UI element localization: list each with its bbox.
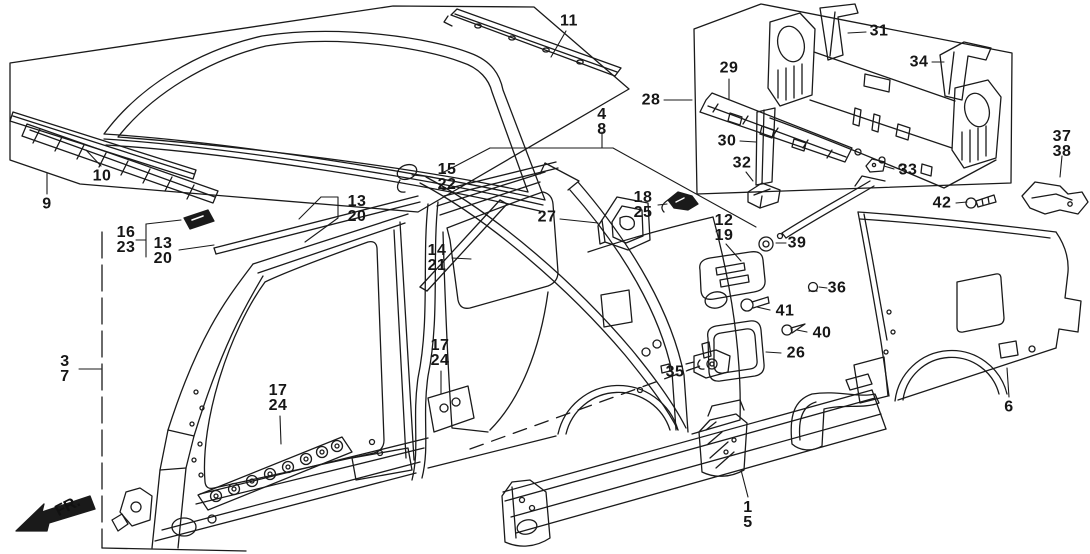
callout-33[interactable]: 33	[899, 163, 918, 178]
parts-diagram-page: 9 10 11 48 28 29 31 34 30 32 33 3738 42 …	[0, 0, 1090, 554]
diagram-line-art	[0, 0, 1090, 554]
sill-panel-1-5	[502, 374, 886, 546]
callout-16-23[interactable]: 1623	[117, 225, 136, 255]
roof-panel	[104, 31, 545, 211]
rear-channel-30	[756, 108, 775, 185]
callout-3-7[interactable]: 37	[60, 354, 69, 384]
callout-35[interactable]: 35	[666, 365, 685, 380]
leader-lines	[47, 31, 1062, 497]
callout-18-25[interactable]: 1825	[634, 190, 653, 220]
front-roof-rail	[10, 112, 218, 203]
callout-28[interactable]: 28	[642, 93, 661, 108]
callout-41[interactable]: 41	[776, 304, 795, 319]
rear-bracket-34	[940, 42, 991, 100]
callout-4-8[interactable]: 48	[597, 107, 606, 137]
callout-37-38[interactable]: 3738	[1053, 129, 1072, 159]
gutter-bracket-37-38	[1022, 182, 1088, 214]
callout-14-21[interactable]: 1421	[428, 243, 447, 273]
callout-40[interactable]: 40	[813, 326, 832, 341]
callout-17-24-right[interactable]: 1724	[431, 338, 450, 368]
fuel-adapter-12-19	[700, 252, 765, 300]
callout-42[interactable]: 42	[933, 196, 952, 211]
callout-32[interactable]: 32	[733, 156, 752, 171]
callout-36[interactable]: 36	[828, 281, 847, 296]
callout-13-20-left[interactable]: 1320	[154, 236, 173, 266]
fuel-lid-26	[698, 321, 764, 381]
callout-10[interactable]: 10	[93, 169, 112, 184]
callout-27[interactable]: 27	[538, 210, 557, 225]
callout-31[interactable]: 31	[870, 24, 889, 39]
grommet-39	[759, 237, 773, 251]
screw-40	[782, 324, 805, 335]
callout-15-22[interactable]: 1522	[438, 162, 457, 192]
callout-29[interactable]: 29	[720, 61, 739, 76]
clip-36	[809, 283, 818, 292]
callout-1-5[interactable]: 15	[743, 500, 752, 530]
callout-39[interactable]: 39	[788, 236, 807, 251]
callout-17-24-left[interactable]: 1724	[269, 383, 288, 413]
rear-clip-32	[748, 183, 780, 208]
rear-bracket-31	[820, 4, 858, 60]
callout-26[interactable]: 26	[787, 346, 806, 361]
group-boundary-3-7	[102, 232, 700, 551]
callout-30[interactable]: 30	[718, 134, 737, 149]
callout-9[interactable]: 9	[42, 197, 51, 212]
clip-18-25	[662, 192, 698, 212]
callout-13-20-mid[interactable]: 1320	[348, 194, 367, 224]
front-direction-arrow	[16, 496, 95, 531]
rear-clip-33	[866, 159, 885, 172]
callout-12-19[interactable]: 1219	[715, 213, 734, 243]
callout-6[interactable]: 6	[1004, 400, 1013, 415]
callout-11[interactable]: 11	[560, 14, 578, 29]
bolt-42	[966, 195, 996, 208]
rear-lower-rail	[700, 93, 852, 162]
callout-34[interactable]: 34	[910, 55, 929, 70]
moulding-end-clip-16-23	[184, 210, 214, 229]
